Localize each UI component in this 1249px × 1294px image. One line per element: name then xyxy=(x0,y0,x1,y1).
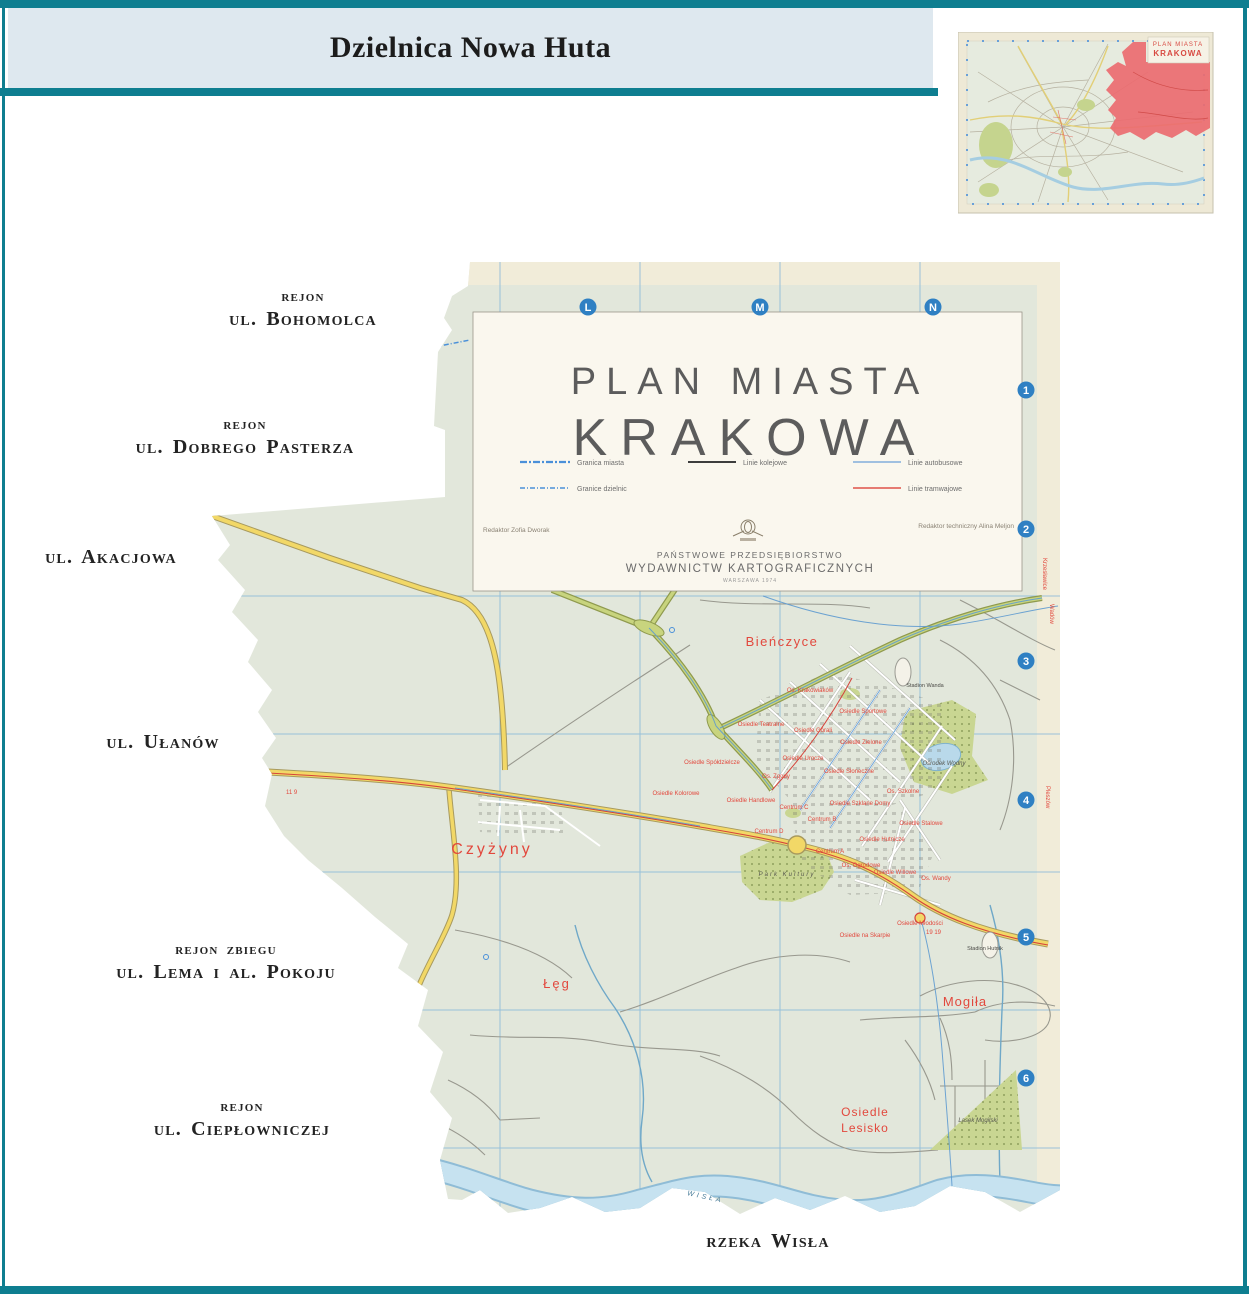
page: Dzielnica Nowa Huta PLAN M xyxy=(0,0,1249,1294)
frame-left xyxy=(2,0,5,1294)
annotation-ul-akacjowa: ul. Akacjowa xyxy=(11,546,211,569)
place-label: Osiedle Spółdzielcze xyxy=(684,760,740,766)
place-label: Osiedle Kolorowe xyxy=(652,791,700,797)
place-label: Osiedle Handlowe xyxy=(727,798,776,804)
place-label: Centrum A xyxy=(816,849,844,855)
legend-label: Linie kolejowe xyxy=(743,460,787,467)
place-label: Stadion Wanda xyxy=(906,683,944,689)
publisher-line2: WYDAWNICTW KARTOGRAFICZNYCH xyxy=(626,563,875,575)
place-label: Osiedle Hutnicze xyxy=(859,837,905,843)
place-label: Osiedle Górali xyxy=(794,728,832,734)
place-label: Centrum C xyxy=(779,805,809,811)
margin-label: Wadów xyxy=(1048,604,1054,624)
map-top-margin xyxy=(400,262,1060,285)
legend-label: Linie autobusowe xyxy=(908,460,963,467)
annotation-line: ul. Akacjowa xyxy=(11,546,211,569)
place-label: Os. Ogrodowe xyxy=(842,863,881,869)
tram-numbers: 19 19 xyxy=(926,930,942,936)
place-label: Osiedle na Skarpie xyxy=(840,933,891,939)
cartouche: PLAN MIASTA KRAKOWA Granica miasta Linie… xyxy=(473,312,1022,591)
credit-right: Redaktor techniczny Alina Meljon xyxy=(918,523,1014,530)
place-label: Osiedle Szklane Domy xyxy=(830,801,891,807)
margin-label: Krzesławice xyxy=(1041,558,1047,591)
header-band: Dzielnica Nowa Huta xyxy=(8,8,933,88)
frame-bottom xyxy=(0,1286,1249,1294)
credit-left: Redaktor Zofia Dworak xyxy=(483,527,550,534)
page-title: Dzielnica Nowa Huta xyxy=(8,8,933,88)
place-label: Mogiła xyxy=(943,994,987,1009)
publisher-line3: WARSZAWA 1974 xyxy=(723,578,777,584)
map-title-line1: PLAN MIASTA xyxy=(571,361,929,403)
district-map: PLAN MIASTA KRAKOWA Granica miasta Linie… xyxy=(200,255,1070,1221)
grid-number: 3 xyxy=(1023,656,1029,668)
place-label: Lasek Mogilski xyxy=(958,1118,998,1124)
map-right-margin xyxy=(1037,262,1060,1202)
grid-number: 5 xyxy=(1023,932,1029,944)
place-label: Osiedle Willowe xyxy=(874,870,917,876)
annotation-line: rzeka Wisła xyxy=(648,1230,888,1253)
place-label: Os. Zgody xyxy=(762,774,790,780)
inset-title-line2: KRAKOWA xyxy=(1153,49,1202,58)
place-label: Centrum B xyxy=(808,817,837,823)
grid-number: 4 xyxy=(1023,795,1030,807)
inset-title-line1: PLAN MIASTA xyxy=(1153,42,1203,48)
place-label: Osiedle Teatralne xyxy=(738,722,785,728)
grid-letter: M xyxy=(755,302,764,314)
place-label: Lesisko xyxy=(841,1121,889,1135)
place-label: Bieńczyce xyxy=(746,634,819,649)
grid-letter: L xyxy=(585,302,592,314)
place-label: Osiedle Sportowe xyxy=(839,709,887,715)
margin-label: Pleszów xyxy=(1044,786,1050,809)
tram-numbers: 11 9 xyxy=(286,790,298,796)
place-label: Łęg xyxy=(543,976,571,991)
frame-right xyxy=(1243,0,1247,1294)
plac-centralny xyxy=(788,836,806,854)
place-label: Czyżyny xyxy=(451,841,532,858)
place-label: Osiedle Słoneczne xyxy=(824,769,875,775)
inset-overview-map: PLAN MIASTA KRAKOWA xyxy=(958,32,1214,214)
annotation-rzeka-wisla: rzeka Wisła xyxy=(648,1230,888,1253)
frame-top xyxy=(0,0,1249,8)
place-label: Stadion Hutnik xyxy=(967,946,1003,952)
legend-label: Granice dzielnic xyxy=(577,486,627,493)
header-underline xyxy=(0,88,938,96)
map-title-line2: KRAKOWA xyxy=(573,409,928,467)
place-label: Osiedle Urocze xyxy=(782,756,824,762)
place-label: Centrum D xyxy=(754,829,784,835)
place-label: Ośrodek Wodny xyxy=(922,761,966,767)
grid-number: 2 xyxy=(1023,524,1029,536)
grid-number: 1 xyxy=(1023,385,1029,397)
place-label: Park Kultury xyxy=(759,872,816,878)
place-label: Os. Wandy xyxy=(921,876,950,882)
place-label: Os. Szkolne xyxy=(887,789,920,795)
grid-letter: N xyxy=(929,302,937,314)
stadium-hutnik-shape xyxy=(982,932,998,958)
place-label: Osiedle Zielone xyxy=(840,740,882,746)
publisher-line1: PAŃSTWOWE PRZEDSIĘBIORSTWO xyxy=(657,550,843,560)
place-label: Osiedle Stalowe xyxy=(899,821,943,827)
place-label: Osiedle Młodości xyxy=(897,921,943,927)
place-label: Os. Krakowiaków xyxy=(787,688,834,694)
legend-label: Linie tramwajowe xyxy=(908,486,962,493)
stadium-wanda-shape xyxy=(895,658,911,686)
grid-number: 6 xyxy=(1023,1073,1029,1085)
legend-label: Granica miasta xyxy=(577,460,624,467)
place-label: Osiedle xyxy=(841,1105,889,1119)
